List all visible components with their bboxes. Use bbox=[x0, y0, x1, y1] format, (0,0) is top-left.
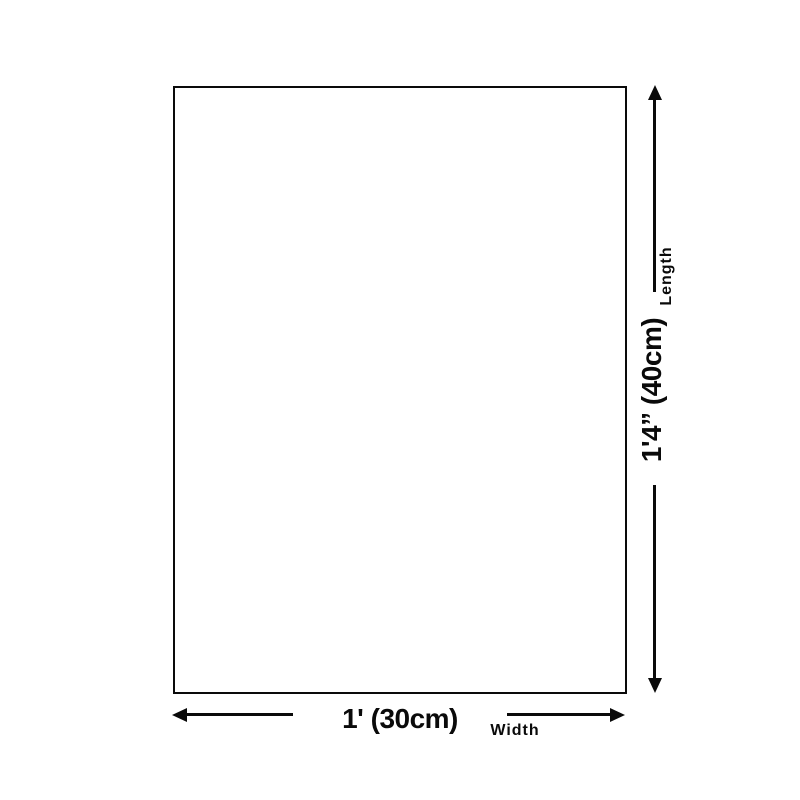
width-dimension-value: 1' (30cm) bbox=[342, 703, 458, 735]
arrow-left-icon bbox=[172, 708, 187, 722]
length-axis-label: Length bbox=[658, 246, 676, 305]
length-arrow-line-upper bbox=[653, 99, 656, 292]
arrow-up-icon bbox=[648, 85, 662, 100]
arrow-right-icon bbox=[610, 708, 625, 722]
width-arrow-line-left bbox=[186, 713, 293, 716]
dimension-diagram: 1'4” (40cm) Length 1' (30cm) Width bbox=[0, 0, 800, 800]
length-dimension-value: 1'4” (40cm) bbox=[636, 318, 668, 462]
width-arrow-line-right bbox=[507, 713, 613, 716]
arrow-down-icon bbox=[648, 678, 662, 693]
width-axis-label: Width bbox=[490, 722, 539, 740]
product-outline-rectangle bbox=[173, 86, 627, 694]
length-arrow-line-lower bbox=[653, 485, 656, 678]
